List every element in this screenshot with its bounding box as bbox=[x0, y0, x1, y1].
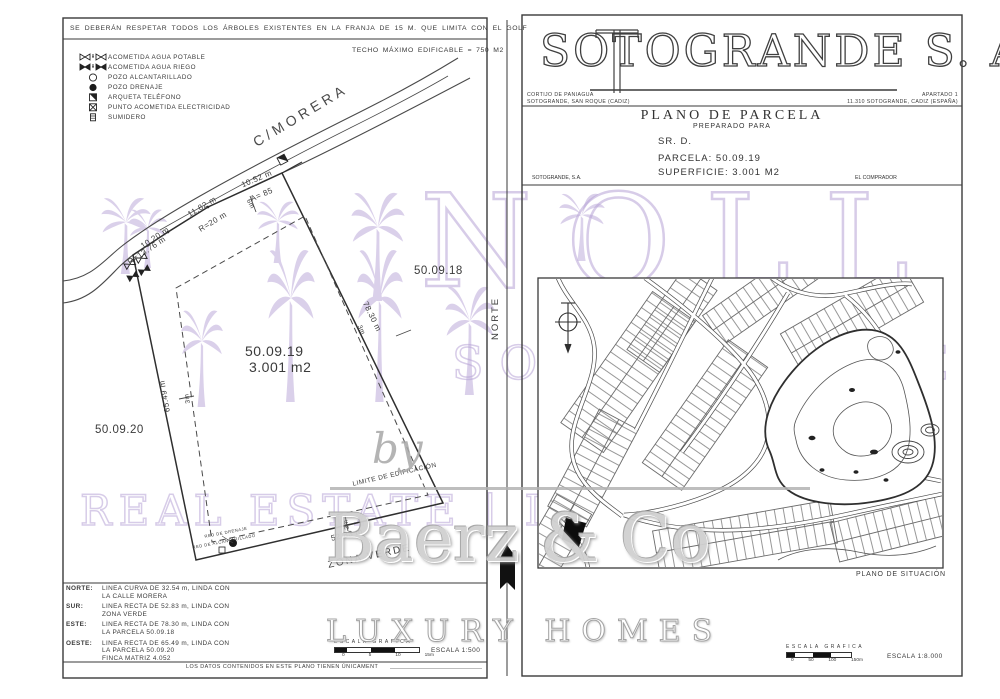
scale-title: ESCALA GRAFICA bbox=[334, 639, 434, 645]
zona-verde-label: ZONA VERDE bbox=[327, 542, 412, 570]
boundary-descriptions: NORTE: LINEA CURVA DE 32.54 m, LINDA CON… bbox=[66, 585, 336, 662]
dir-text: LINEA RECTA DE 78.30 m, LINDA CON bbox=[102, 621, 229, 628]
dir-text: LA CALLE MORERA bbox=[102, 593, 167, 600]
scale-right: ESCALA GRAFICA 0 50 100 150m bbox=[786, 644, 864, 663]
red-alcantarillado-label: RED DE ALCANTARILLADO bbox=[192, 533, 256, 550]
scale-right-value: ESCALA 1:8.000 bbox=[887, 653, 943, 660]
dir-oeste: OESTE: LINEA RECTA DE 65.49 m, LINDA CON… bbox=[66, 640, 336, 663]
dir-text: LA PARCELA 50.09.18 bbox=[102, 629, 175, 636]
drain-well-icon bbox=[78, 83, 108, 92]
parcel-number-label: 50.09.19 bbox=[245, 343, 304, 359]
parcel-plan-sheet: NOLL SOTOGRANDE REAL ESTATE | INMOBILIAR… bbox=[0, 0, 1000, 699]
company-logo: SOTOGRANDE S. A. bbox=[540, 26, 940, 77]
water-supply-icon bbox=[78, 53, 108, 61]
legend-label: ACOMETIDA AGUA POTABLE bbox=[108, 54, 205, 61]
dir-norte: NORTE: LINEA CURVA DE 32.54 m, LINDA CON… bbox=[66, 585, 336, 600]
scale-left: ESCALA GRAFICA 0 5 10 15m bbox=[334, 639, 434, 658]
meas-west: 65.49 m bbox=[157, 380, 171, 413]
dir-label: NORTE: bbox=[66, 585, 102, 600]
manhole-icon bbox=[78, 73, 108, 82]
scale-tick: 50 bbox=[808, 658, 813, 663]
scale-tick: 0 bbox=[342, 653, 345, 658]
legend-label: ACOMETIDA AGUA RIEGO bbox=[108, 64, 196, 71]
max-buildable-note: TECHO MÁXIMO EDIFICABLE = 750 M2 bbox=[352, 47, 504, 54]
building-limit-label: LIMITE DE EDIFICACIÓN bbox=[352, 462, 437, 488]
sheet-title: PLANO DE PARCELA bbox=[522, 108, 942, 124]
scale-title: ESCALA GRAFICA bbox=[786, 644, 864, 650]
phone-box-icon bbox=[78, 93, 108, 102]
scale-tick: 5 bbox=[369, 653, 372, 658]
company-address-right: APARTADO 1 11.310 SOTOGRANDE, CADIZ (ESP… bbox=[847, 92, 958, 105]
legend-label: POZO ALCANTARILLADO bbox=[108, 74, 192, 81]
dir-label: OESTE: bbox=[66, 640, 102, 663]
legend-item: POZO DRENAJE bbox=[78, 82, 230, 92]
norte-label: NORTE bbox=[490, 297, 501, 340]
golf-note: SE DEBERÁN RESPETAR TODOS LOS ÁRBOLES EX… bbox=[70, 25, 527, 32]
parcela-value: PARCELA: 50.09.19 bbox=[658, 153, 761, 164]
dir-este: ESTE: LINEA RECTA DE 78.30 m, LINDA CON … bbox=[66, 621, 336, 636]
dir-text: LINEA RECTA DE 65.49 m, LINDA CON bbox=[102, 640, 229, 647]
legend-item: ACOMETIDA AGUA POTABLE bbox=[78, 52, 230, 62]
neighbor-east-label: 50.09.18 bbox=[414, 265, 463, 277]
scale-left-value: ESCALA 1:500 bbox=[431, 647, 480, 654]
dir-text: LINEA CURVA DE 32.54 m, LINDA CON bbox=[102, 585, 230, 592]
dir-text: ZONA VERDE bbox=[102, 611, 147, 618]
signature-company: SOTOGRANDE, S.A. bbox=[532, 175, 581, 181]
legend-item: SUMIDERO bbox=[78, 112, 230, 122]
scale-tick: 10 bbox=[395, 653, 400, 658]
dir-text: LINEA RECTA DE 52.83 m, LINDA CON bbox=[102, 603, 229, 610]
dir-label: SUR: bbox=[66, 603, 102, 618]
legend-label: POZO DRENAJE bbox=[108, 84, 163, 91]
map-caption: PLANO DE SITUACIÓN bbox=[856, 571, 946, 578]
parcel-area-label: 3.001 m2 bbox=[249, 359, 311, 375]
setback-south: 3m bbox=[342, 519, 351, 530]
irrigation-supply-icon bbox=[78, 63, 108, 71]
scale-tick: 100 bbox=[828, 658, 836, 663]
company-address-left: CORTIJO DE PANIAGUA SOTOGRANDE, SAN ROQU… bbox=[527, 92, 630, 105]
legend-item: ACOMETIDA AGUA RIEGO bbox=[78, 62, 230, 72]
dir-text: FINCA MATRIZ 4.052 bbox=[102, 655, 171, 662]
street-name-label: C/MORERA bbox=[250, 81, 350, 150]
legend-label: SUMIDERO bbox=[108, 114, 146, 121]
dir-text: LA PARCELA 50.09.20 bbox=[102, 647, 175, 654]
legend-label: PUNTO ACOMETIDA ELECTRICIDAD bbox=[108, 104, 230, 111]
legend-label: ARQUETA TELÉFONO bbox=[108, 94, 181, 101]
faded-signature-line bbox=[390, 668, 482, 669]
scale-tick: 0 bbox=[791, 658, 794, 663]
text-layer: SE DEBERÁN RESPETAR TODOS LOS ÁRBOLES EX… bbox=[0, 0, 1000, 699]
dir-sur: SUR: LINEA RECTA DE 52.83 m, LINDA CON Z… bbox=[66, 603, 336, 618]
legend: ACOMETIDA AGUA POTABLE ACOMETIDA AGUA RI… bbox=[78, 52, 230, 122]
signature-buyer: EL COMPRADOR bbox=[855, 175, 897, 181]
data-disclaimer: LOS DATOS CONTENIDOS EN ESTE PLANO TIENE… bbox=[186, 664, 378, 670]
legend-item: POZO ALCANTARILLADO bbox=[78, 72, 230, 82]
legend-item: ARQUETA TELÉFONO bbox=[78, 92, 230, 102]
electric-point-icon bbox=[78, 103, 108, 112]
setback-east: 3m bbox=[356, 324, 367, 336]
superficie-value: SUPERFICIE: 3.001 M2 bbox=[658, 167, 780, 178]
neighbor-west-label: 50.09.20 bbox=[95, 424, 144, 436]
sheet-subtitle: PREPARADO PARA bbox=[522, 123, 942, 130]
scale-tick: 150m bbox=[851, 658, 863, 663]
legend-item: PUNTO ACOMETIDA ELECTRICIDAD bbox=[78, 102, 230, 112]
setback-west: 3m bbox=[183, 393, 192, 404]
meas-n2r: R=20 m bbox=[197, 210, 228, 234]
dir-label: ESTE: bbox=[66, 621, 102, 636]
gully-icon bbox=[78, 113, 108, 122]
client-label: SR. D. bbox=[658, 136, 692, 147]
